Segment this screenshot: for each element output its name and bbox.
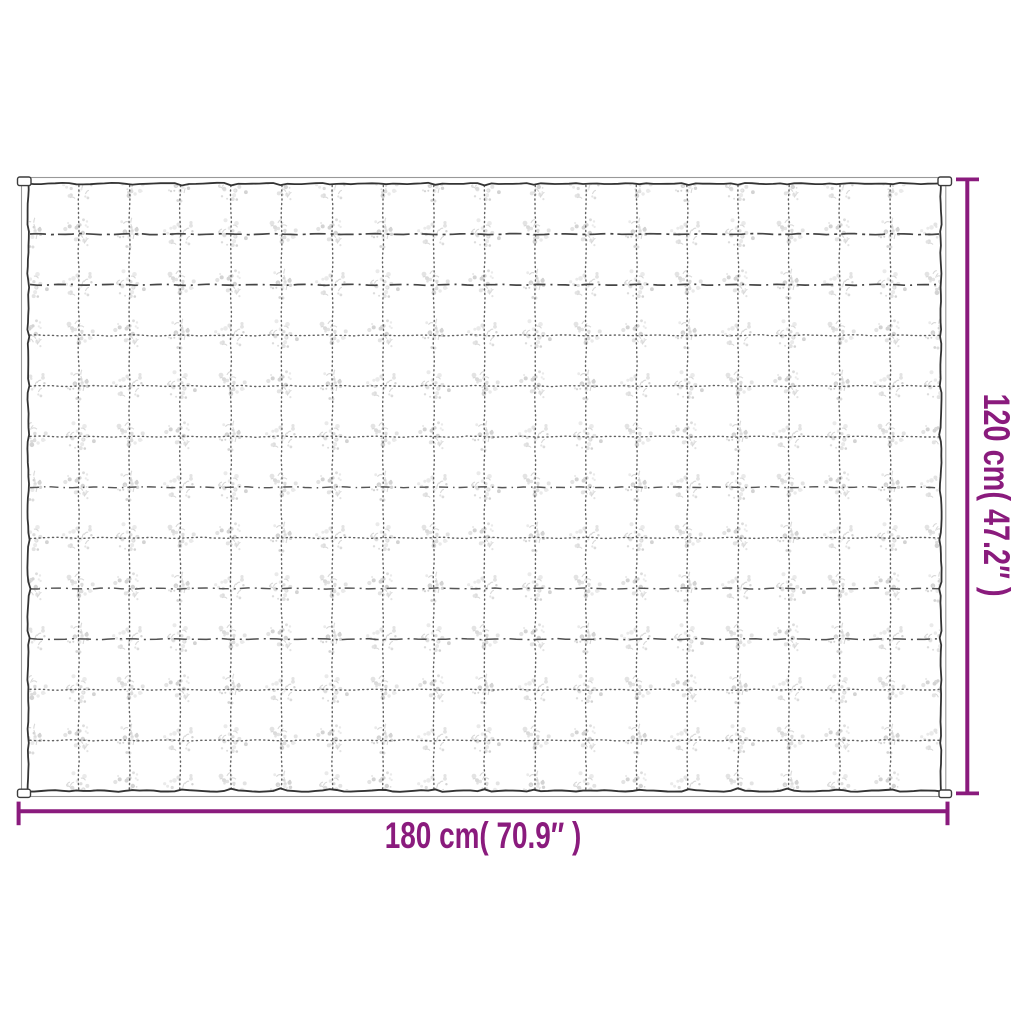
svg-text:180 cm( 70.9″ ): 180 cm( 70.9″ ) [385,814,582,856]
svg-text:120 cm( 47.2″ ): 120 cm( 47.2″ ) [975,393,1016,596]
